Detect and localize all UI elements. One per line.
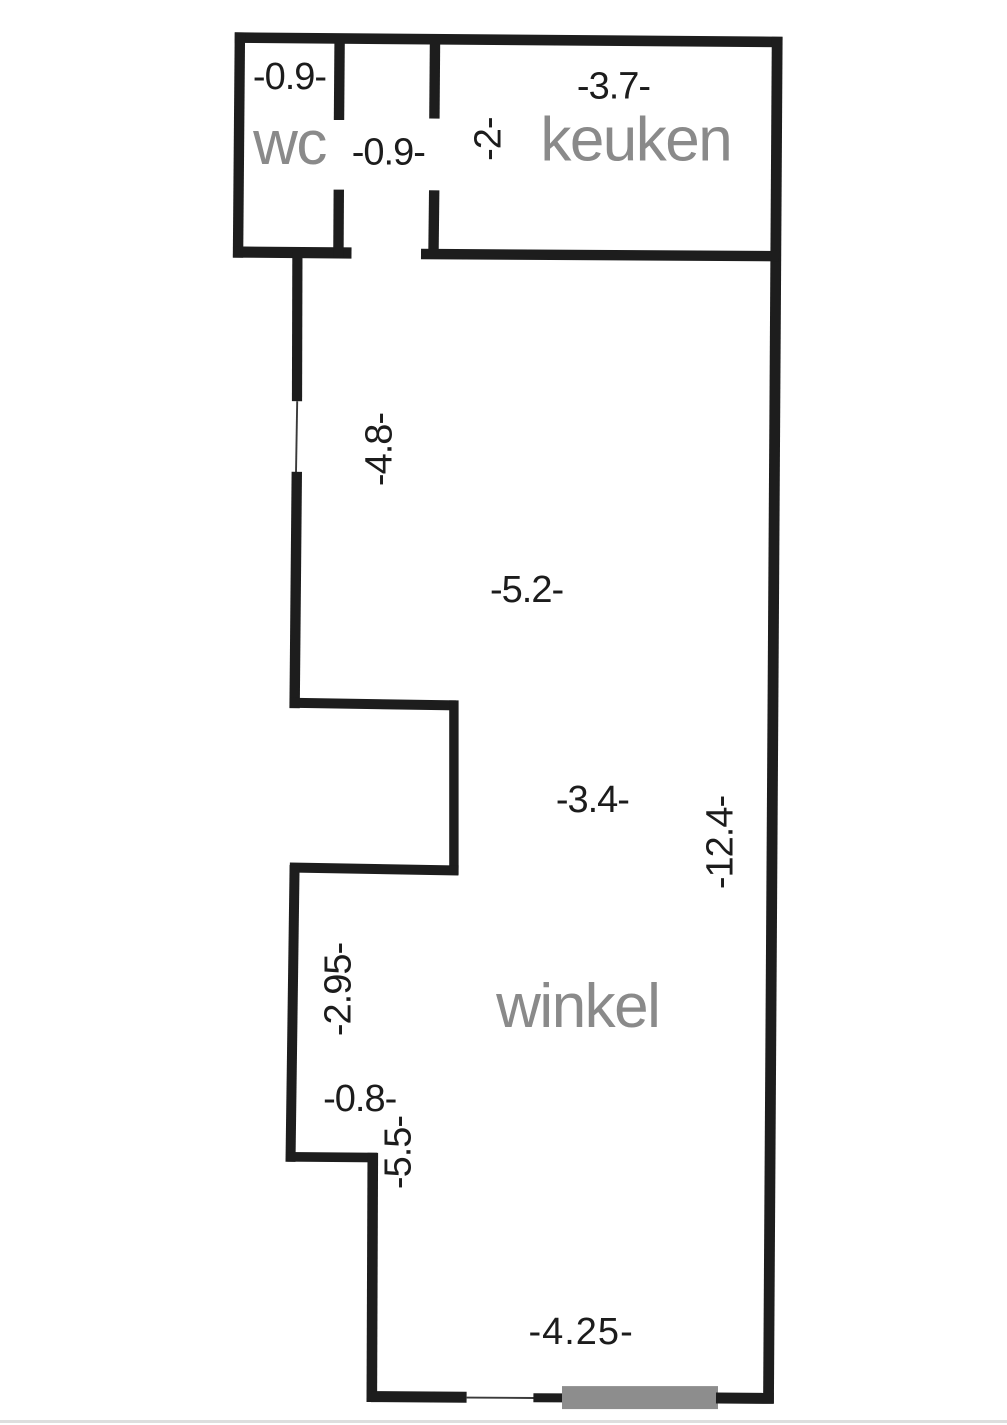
svg-text:-0.9-: -0.9-	[253, 56, 326, 98]
svg-text:-2-: -2-	[468, 117, 510, 160]
svg-text:keuken: keuken	[540, 106, 731, 175]
svg-text:-3.7-: -3.7-	[577, 66, 650, 108]
svg-text:-4.25-: -4.25-	[528, 1311, 633, 1353]
svg-text:-5.5-: -5.5-	[378, 1116, 420, 1189]
svg-text:-3.4-: -3.4-	[556, 779, 629, 821]
svg-text:-5.2-: -5.2-	[490, 569, 563, 611]
svg-text:-0.9-: -0.9-	[352, 131, 425, 173]
svg-text:winkel: winkel	[495, 972, 659, 1041]
svg-text:-0.8-: -0.8-	[323, 1078, 396, 1120]
svg-text:-2.95-: -2.95-	[318, 943, 360, 1036]
svg-text:wc: wc	[252, 109, 326, 178]
svg-text:-12.4-: -12.4-	[699, 796, 741, 889]
svg-text:-4.8-: -4.8-	[359, 413, 401, 486]
